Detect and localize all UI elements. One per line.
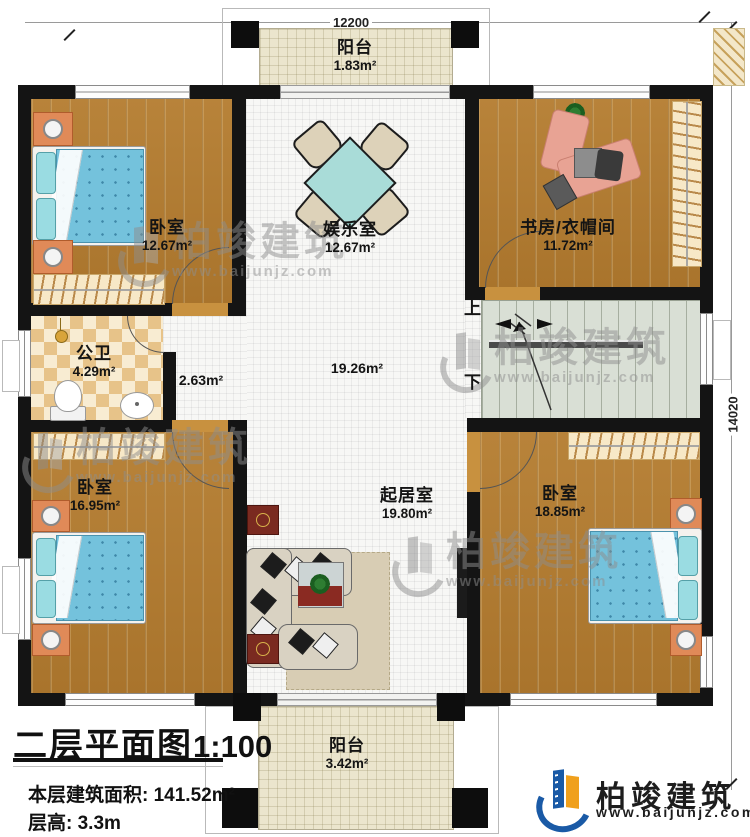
dimension-tick	[63, 29, 75, 41]
end-table	[247, 634, 279, 664]
watermark-name: 柏竣建筑	[172, 222, 348, 262]
window-stairs	[700, 313, 713, 385]
watermark-logo-icon	[22, 429, 76, 487]
pillow	[36, 198, 56, 240]
dimension-height: 14020	[726, 393, 741, 435]
watermark-url: www.baijunjz.com	[494, 368, 670, 388]
floor-height-line: 层高: 3.3m	[28, 808, 121, 835]
room-label-bedroom-bottom-right: 卧室 18.85m²	[535, 484, 585, 519]
nightstand	[32, 624, 70, 656]
nightstand	[670, 498, 702, 530]
column	[452, 788, 488, 828]
lamp-icon	[43, 247, 63, 267]
brand-url: www.baijunjz.com	[596, 804, 750, 820]
room-label-bedroom-top-left: 卧室 12.67m²	[142, 218, 192, 253]
pillow	[678, 536, 698, 576]
column	[437, 693, 465, 721]
floor-area-line: 本层建筑面积: 141.52m²	[28, 780, 235, 807]
pillow	[36, 152, 56, 194]
room-label-bedroom-bottom-left: 卧室 16.95m²	[70, 478, 120, 513]
stairs-up-label: 上	[464, 294, 481, 319]
pillow	[36, 580, 56, 618]
nightstand	[670, 624, 702, 656]
stairs-down-label: 下	[464, 368, 481, 393]
window-bedroom2	[65, 693, 195, 706]
window-study	[533, 85, 650, 99]
nightstand	[32, 500, 70, 532]
watermark-name: 柏竣建筑	[446, 532, 622, 572]
room-label-study: 书房/衣帽间 11.72m²	[520, 218, 616, 253]
brand-logo-icon	[538, 768, 590, 824]
watermark: 柏竣建筑 www.baijunjz.com	[22, 428, 252, 488]
wall-bath-corridor	[163, 352, 176, 426]
door-bedroom3-opening	[467, 432, 480, 492]
room-label-balcony-bottom: 阳台 3.42m²	[326, 736, 369, 771]
watermark-name: 柏竣建筑	[494, 328, 670, 368]
pillow	[36, 538, 56, 576]
room-label-balcony-top: 阳台 1.83m²	[334, 38, 377, 73]
watermark-url: www.baijunjz.com	[172, 262, 348, 282]
lamp-icon	[41, 630, 61, 650]
nightstand	[33, 240, 73, 274]
wall-stairs-bedroom3	[467, 418, 713, 432]
wall-jamb	[228, 303, 246, 316]
window-bedroom3	[510, 693, 657, 706]
window-bedroom1	[75, 85, 190, 99]
room-label-bathroom: 公卫 4.29m²	[73, 344, 116, 379]
room-label-entertainment: 娱乐室 12.67m²	[323, 220, 377, 255]
end-table	[247, 505, 279, 535]
pillow	[678, 580, 698, 620]
column	[451, 21, 479, 48]
area-label-corridor: 2.63m²	[179, 372, 223, 388]
awning-hatch	[713, 28, 745, 86]
lamp-icon	[676, 630, 696, 650]
sliding-door-balcony-bottom	[277, 693, 437, 706]
watermark-name: 柏竣建筑	[76, 428, 252, 468]
window-ledge	[2, 340, 20, 392]
lamp-icon	[41, 506, 61, 526]
room-label-living: 起居室 19.80m²	[380, 486, 434, 521]
lamp-icon	[676, 504, 696, 524]
wall-study-stairs	[540, 287, 713, 300]
nightstand	[33, 112, 73, 146]
column	[231, 21, 259, 48]
wall-study-hall	[465, 98, 479, 300]
area-label-hall: 19.26m²	[331, 360, 383, 376]
wall-living-bedroom3	[467, 492, 480, 693]
wardrobe-bedroom3	[568, 432, 700, 460]
column	[233, 693, 261, 721]
desk-chair	[594, 148, 624, 181]
sink-drain	[135, 402, 139, 406]
door-bedroom1-opening	[172, 303, 228, 316]
watermark-logo-icon	[392, 533, 446, 591]
window-ledge	[713, 320, 731, 380]
pull-light	[55, 330, 68, 343]
wardrobe-study	[672, 101, 702, 267]
title-underline-thin	[13, 766, 223, 767]
floor-plan: 12200 14020	[0, 0, 750, 837]
plant	[310, 574, 330, 594]
watermark: 柏竣建筑 www.baijunjz.com	[392, 532, 622, 592]
window-ledge	[2, 566, 20, 634]
toilet	[54, 380, 82, 412]
lamp-icon	[43, 119, 63, 139]
title-underline	[13, 758, 223, 762]
sliding-door-balcony-top	[280, 85, 450, 99]
watermark-url: www.baijunjz.com	[446, 572, 622, 592]
door-study-opening	[485, 287, 540, 300]
